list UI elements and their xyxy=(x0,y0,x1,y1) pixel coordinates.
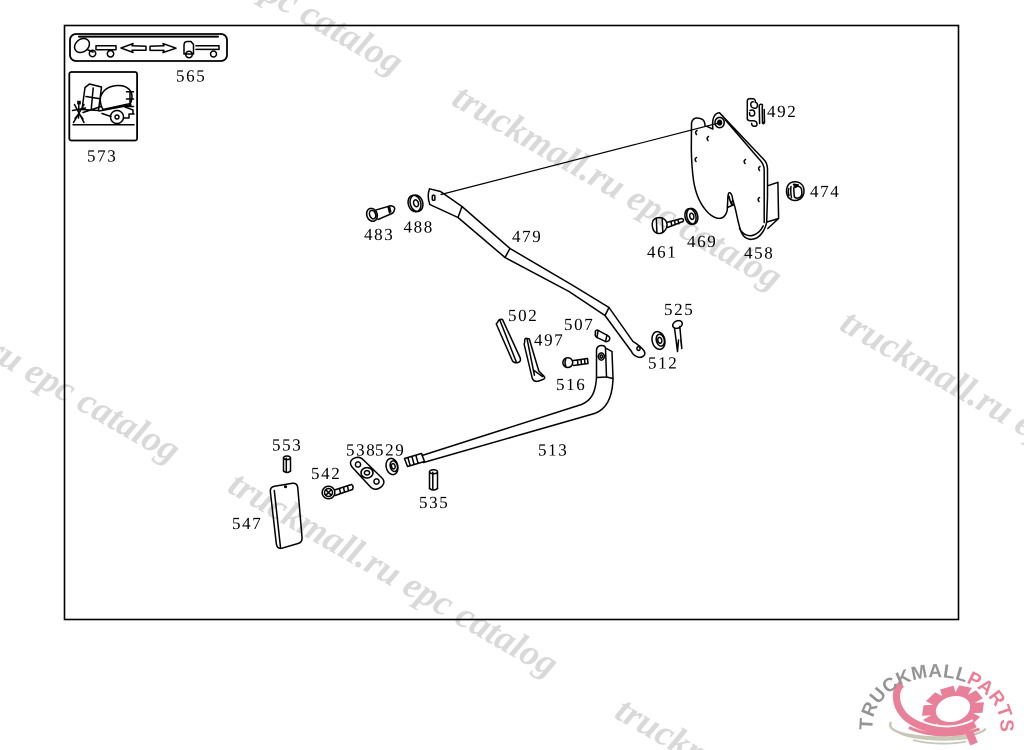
svg-text:565: 565 xyxy=(176,67,206,86)
svg-text:truckmall.ru epc catalog: truckmall.ru epc catalog xyxy=(446,76,790,298)
svg-text:497: 497 xyxy=(534,331,564,350)
svg-text:469: 469 xyxy=(687,232,717,251)
svg-text:479: 479 xyxy=(512,227,542,246)
svg-text:truckmall.ru epc catalog: truckmall.ru epc catalog xyxy=(67,0,411,83)
svg-text:502: 502 xyxy=(508,306,538,325)
svg-text:547: 547 xyxy=(232,514,262,533)
svg-text:458: 458 xyxy=(744,244,774,263)
svg-text:516: 516 xyxy=(556,375,586,394)
svg-text:525: 525 xyxy=(664,300,694,319)
svg-text:492: 492 xyxy=(767,102,797,121)
svg-text:truckmall.ru epc catalog: truckmall.ru epc catalog xyxy=(0,249,187,471)
svg-text:512: 512 xyxy=(648,354,678,373)
svg-text:488: 488 xyxy=(404,218,434,237)
svg-text:507: 507 xyxy=(564,315,594,334)
svg-text:truckmall.ru epc catalog: truckmall.ru epc catalog xyxy=(222,463,566,685)
svg-text:474: 474 xyxy=(810,182,840,201)
svg-text:538: 538 xyxy=(346,441,376,460)
svg-text:513: 513 xyxy=(538,441,568,460)
svg-text:483: 483 xyxy=(364,225,394,244)
svg-text:553: 553 xyxy=(272,436,302,455)
svg-text:535: 535 xyxy=(419,493,449,512)
svg-text:truckmall.ru epc catalog: truckmall.ru epc catalog xyxy=(834,301,1024,523)
svg-text:573: 573 xyxy=(87,147,117,166)
svg-text:542: 542 xyxy=(311,464,341,483)
svg-text:461: 461 xyxy=(647,243,677,262)
svg-text:529: 529 xyxy=(375,441,405,460)
